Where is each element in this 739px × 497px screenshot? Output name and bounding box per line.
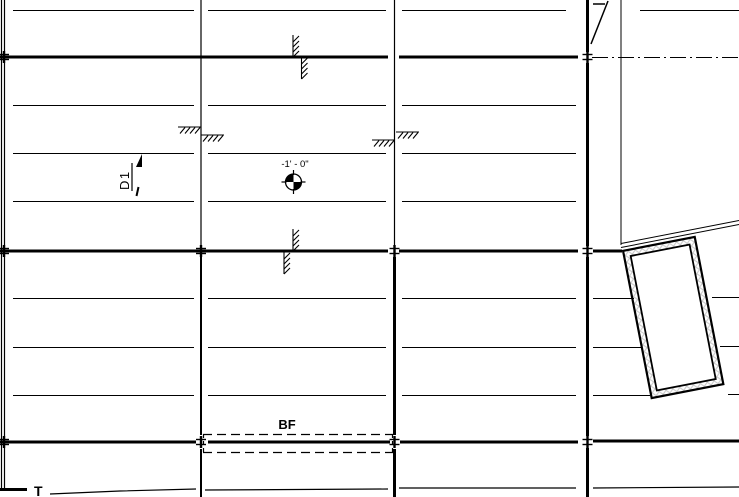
footing-tag-label: BF (278, 417, 295, 432)
spot-elevation-value: -1' - 0" (281, 159, 308, 170)
detail-marker-label: D1 (117, 170, 132, 190)
truncated-bottom-label: T (34, 483, 43, 497)
drawing-canvas[interactable]: BF D1 -1' - 0" T (0, 0, 739, 497)
paper-background (0, 0, 739, 497)
